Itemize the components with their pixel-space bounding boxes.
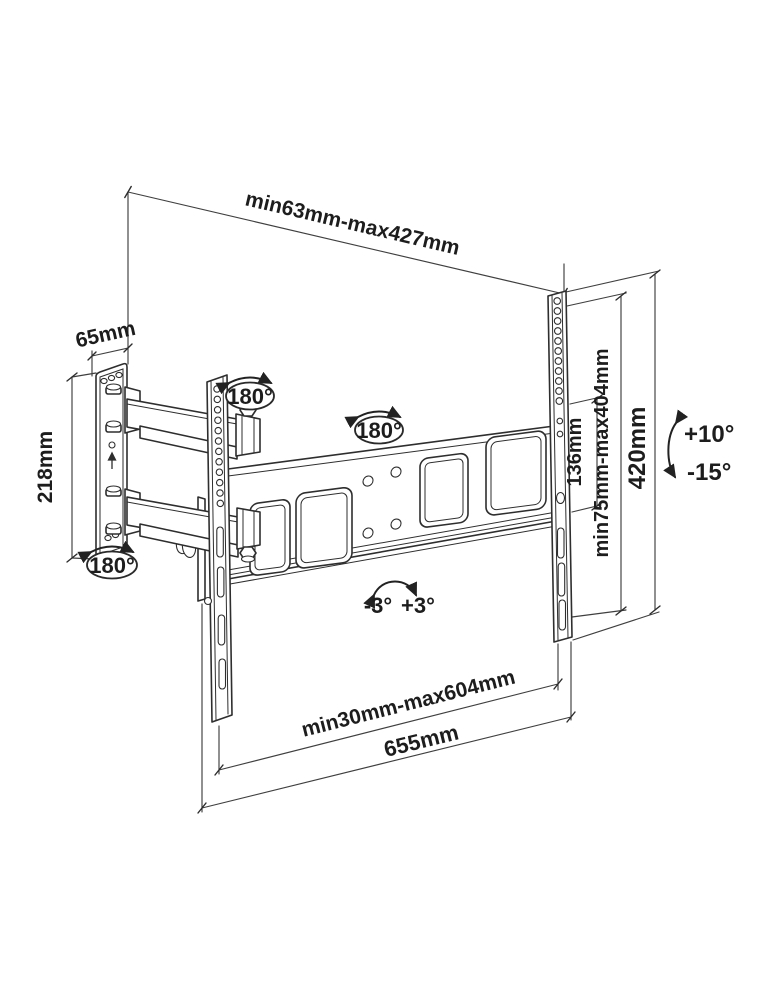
tilt-up-label: +10°: [684, 421, 734, 448]
dim-top-span-line: [128, 192, 564, 294]
dim-bracket-height-label: 420mm: [624, 407, 651, 490]
rail-slot: [217, 527, 224, 557]
dim-hole-spacing-label: 136mm: [564, 418, 586, 487]
wall-screw-hole: [101, 378, 107, 383]
crossbar: [228, 425, 562, 584]
upper-hinge-block: [236, 414, 260, 456]
dim-plate-height-label: 218mm: [34, 431, 57, 503]
rail-slot: [558, 563, 565, 596]
ext-line: [72, 373, 96, 559]
dim-plate-width-line: [92, 348, 128, 356]
swivel-rail-label: 180°: [227, 384, 273, 409]
tilt-arrow-icon: [668, 423, 676, 477]
level-cw-label: +3°: [401, 593, 435, 618]
wall-screw-hole: [116, 372, 122, 377]
rail-slot: [219, 659, 226, 689]
center-hole: [109, 442, 115, 448]
level-ccw-label: -3°: [364, 593, 392, 618]
wall-screw-hole: [105, 535, 111, 540]
wall-screw-hole: [108, 375, 114, 380]
swivel-center-label: 180°: [356, 418, 402, 443]
rail-slot: [559, 600, 566, 630]
rail-slot: [558, 528, 565, 558]
dim-top-span-label: min63mm-max427mm: [243, 187, 462, 260]
dim-vesa-range-label: min75mm-max404mm: [591, 349, 613, 558]
rail-slot: [217, 567, 224, 597]
tilt-down-label: -15°: [687, 459, 731, 486]
dim-crossbar-width-line: [202, 717, 571, 808]
locking-screw: [205, 598, 212, 605]
crossbar-cutout: [486, 430, 546, 516]
mount-diagram: min63mm-max427mm 65mm 218mm 180° 180° 18…: [0, 0, 771, 1000]
wall-plate: [96, 364, 140, 561]
technical-drawing-page: min63mm-max427mm 65mm 218mm 180° 180° 18…: [0, 0, 771, 1000]
rail-slot: [218, 615, 225, 645]
lower-hinge-block: [237, 508, 260, 549]
swivel-wall-label: 180°: [89, 553, 135, 578]
